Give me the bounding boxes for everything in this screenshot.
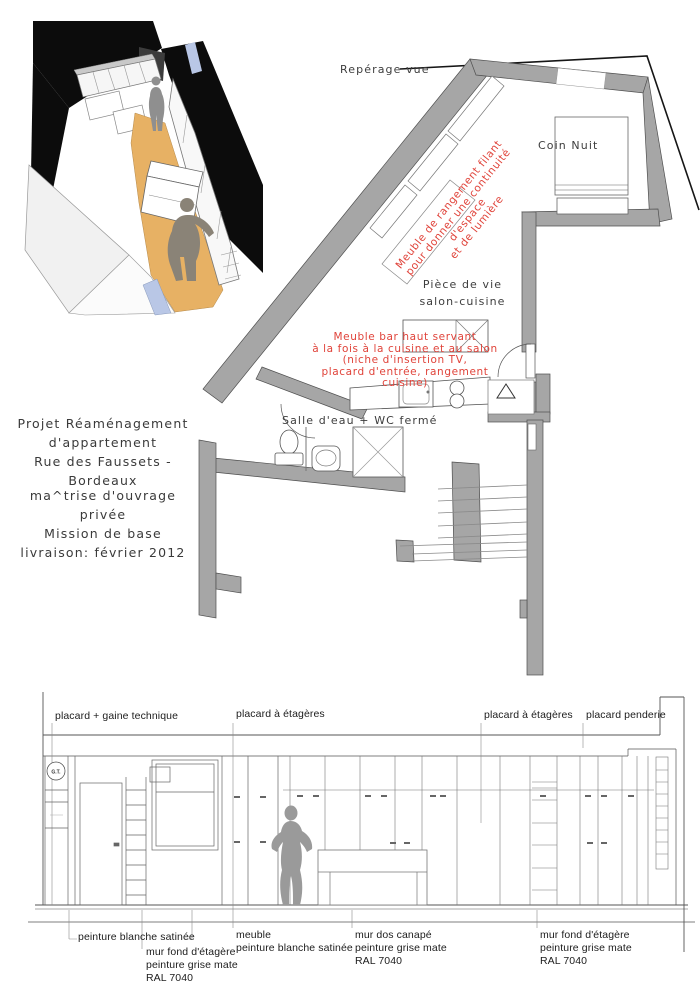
elevation-label-placard-penderie: placard penderie	[586, 709, 666, 722]
elevation-leader-lines	[52, 723, 583, 949]
elevation-label-placard-gaine: placard + gaine technique	[55, 710, 178, 723]
ladder	[126, 777, 146, 905]
entry-door-panel	[656, 757, 668, 869]
bed	[555, 117, 628, 214]
room-label-salle-eau: Salle d'eau + WC fermé	[282, 414, 438, 427]
sheet: Repérage vue Coin Nuit Pièce de vie salo…	[0, 0, 700, 990]
washbasin	[312, 446, 340, 471]
project-title-block: Projet Réaménagement d'appartement Rue d…	[8, 414, 198, 490]
cabinet-handles-left	[234, 796, 266, 843]
cabinet-handles-right	[297, 795, 634, 844]
annotation-meuble-bar: Meuble bar haut servant à la fois à la c…	[310, 332, 500, 390]
finish-label-mur-fond-etagere-2: mur fond d'étagère peinture grise mate R…	[540, 929, 632, 968]
finish-label-mur-fond-etagere-1: mur fond d'étagère peinture grise mate R…	[146, 946, 238, 985]
shelf-column	[532, 782, 557, 890]
gaine-technique-marker: G.T.	[51, 770, 61, 776]
project-details-block: ma^trise d'ouvrage privée Mission de bas…	[8, 486, 198, 562]
elevation-frame	[28, 692, 695, 952]
finish-label-meuble: meuble peinture blanche satinée	[236, 929, 353, 955]
elevation-label-placard-etageres-2: placard à étagères	[484, 709, 573, 722]
shower	[353, 427, 403, 477]
toilet	[275, 430, 303, 465]
finish-label-mur-dos-canape: mur dos canapé peinture grise mate RAL 7…	[355, 929, 447, 968]
person-silhouette	[271, 806, 312, 906]
room-label-coin-nuit: Coin Nuit	[538, 139, 598, 152]
door-handle	[114, 843, 119, 846]
elevation-label-placard-etageres-1: placard à étagères	[236, 708, 325, 721]
view-marker-label: Repérage vue	[340, 63, 430, 76]
elevation-left-zone	[45, 756, 278, 905]
finish-label-peinture-blanche: peinture blanche satinée	[78, 931, 195, 944]
window-panel	[152, 760, 218, 850]
sofa	[318, 850, 427, 905]
